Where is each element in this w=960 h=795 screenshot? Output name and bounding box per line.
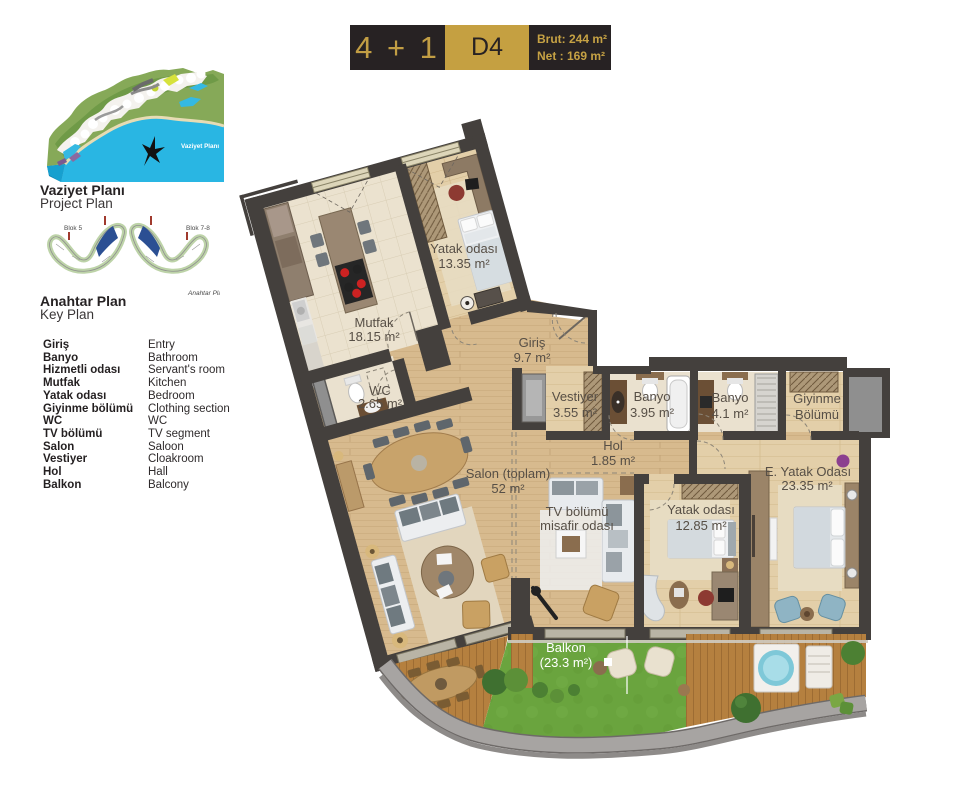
svg-text:52 m²: 52 m² — [491, 481, 525, 496]
svg-text:18.15 m²: 18.15 m² — [348, 329, 400, 344]
svg-text:Hol: Hol — [603, 438, 623, 453]
svg-text:E. Yatak Odası: E. Yatak Odası — [765, 464, 851, 479]
svg-text:Giriş: Giriş — [519, 335, 546, 350]
svg-text:13.35 m²: 13.35 m² — [438, 256, 490, 271]
svg-text:TV bölümü: TV bölümü — [546, 504, 609, 519]
svg-text:Mutfak: Mutfak — [354, 315, 394, 330]
svg-text:Vestiyer: Vestiyer — [552, 389, 599, 404]
svg-text:1.85 m²: 1.85 m² — [591, 453, 636, 468]
svg-text:9.7 m²: 9.7 m² — [514, 350, 552, 365]
svg-text:Salon (toplam): Salon (toplam) — [466, 466, 551, 481]
svg-text:23.35 m²: 23.35 m² — [781, 478, 833, 493]
svg-text:Banyo: Banyo — [634, 389, 671, 404]
svg-text:4.1 m²: 4.1 m² — [712, 406, 750, 421]
svg-text:Balkon: Balkon — [546, 640, 586, 655]
svg-text:Bölümü: Bölümü — [795, 407, 839, 422]
svg-text:Yatak odası: Yatak odası — [667, 502, 735, 517]
svg-text:Giyinme: Giyinme — [793, 391, 841, 406]
svg-text:Yatak odası: Yatak odası — [430, 241, 498, 256]
svg-text:2.65 m²: 2.65 m² — [358, 396, 403, 411]
svg-text:3.55 m²: 3.55 m² — [553, 405, 598, 420]
svg-text:3.95 m²: 3.95 m² — [630, 405, 675, 420]
svg-text:Banyo: Banyo — [712, 390, 749, 405]
svg-text:misafir odası: misafir odası — [540, 518, 614, 533]
svg-text:(23.3 m²): (23.3 m²) — [540, 655, 593, 670]
svg-text:12.85 m²: 12.85 m² — [675, 518, 727, 533]
